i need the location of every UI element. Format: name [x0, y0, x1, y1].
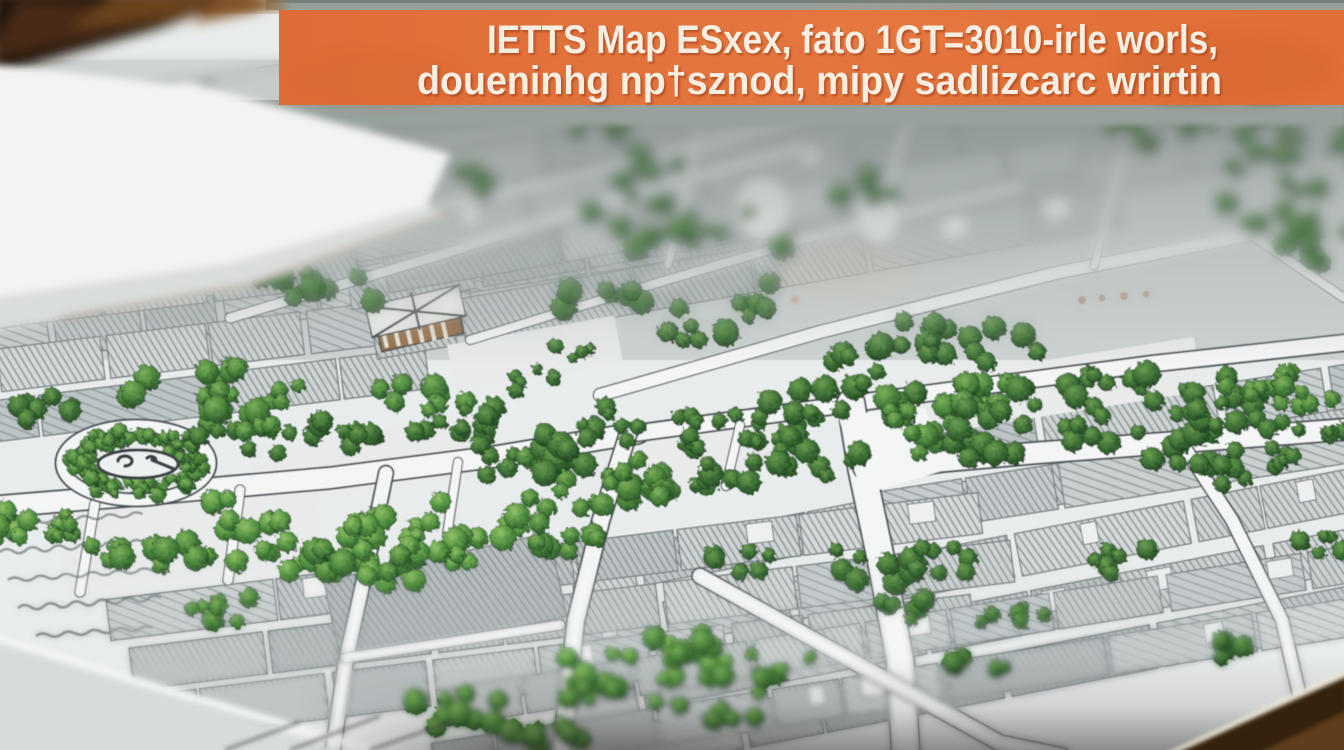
svg-text:IETTS Map ESxex, fato 1GT=3010: IETTS Map ESxex, fato 1GT=3010-irle worl…: [487, 18, 1218, 62]
svg-text:doueninhg np†sznod, mipy sadli: doueninhg np†sznod, mipy sadlizcarc wrir…: [417, 59, 1222, 103]
